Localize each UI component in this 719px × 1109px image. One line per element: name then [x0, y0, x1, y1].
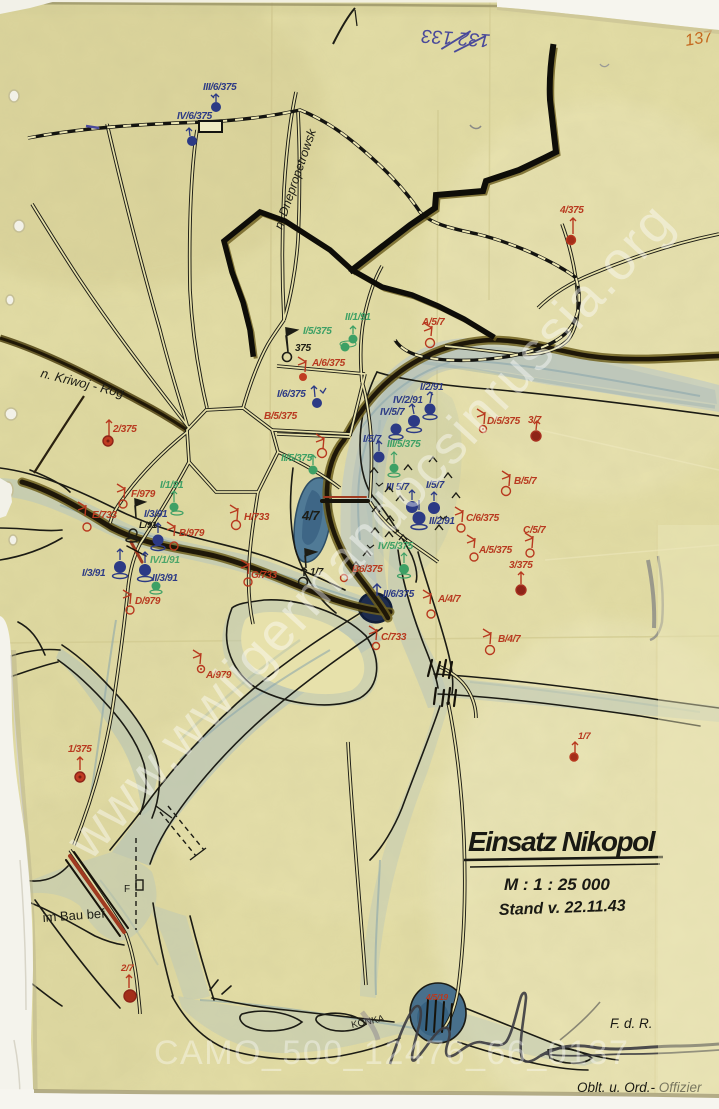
svg-text:D/979: D/979	[135, 596, 161, 607]
svg-text:B/4/7: B/4/7	[498, 634, 521, 645]
svg-text:I/5/375: I/5/375	[303, 326, 332, 337]
svg-text:I/3/91: I/3/91	[82, 568, 106, 579]
svg-text:375: 375	[295, 343, 312, 354]
svg-text:4/7: 4/7	[301, 508, 320, 523]
svg-text:I/2/91: I/2/91	[420, 382, 444, 393]
svg-text:III/6/375: III/6/375	[203, 82, 237, 93]
svg-text:A/5/375: A/5/375	[478, 545, 513, 556]
svg-text:II/5/375: II/5/375	[281, 453, 313, 464]
svg-text:3/375: 3/375	[509, 560, 533, 571]
svg-text:L/91: L/91	[139, 520, 157, 531]
svg-text:I/3/91: I/3/91	[144, 509, 168, 520]
svg-text:C/733: C/733	[381, 632, 407, 643]
svg-text:2/7: 2/7	[120, 963, 134, 974]
svg-text:I/6/375: I/6/375	[277, 389, 306, 400]
svg-text:I/1/91: I/1/91	[160, 480, 184, 491]
svg-text:C/6/375: C/6/375	[466, 513, 500, 524]
svg-text:1/375: 1/375	[68, 744, 92, 755]
svg-text:IV/1/91: IV/1/91	[150, 555, 180, 566]
svg-text:1/7: 1/7	[578, 731, 591, 742]
svg-text:CAMO_500_12476_66_0137: CAMO_500_12476_66_0137	[154, 1034, 629, 1072]
svg-text:B/5/375: B/5/375	[264, 411, 298, 422]
svg-text:3/7: 3/7	[528, 415, 542, 426]
svg-text:H/733: H/733	[244, 512, 270, 523]
svg-text:A/5/7: A/5/7	[421, 317, 445, 328]
svg-text:A/4/7: A/4/7	[437, 594, 461, 605]
svg-text:Einsatz Nikopol: Einsatz Nikopol	[468, 826, 657, 857]
svg-text:M : 1 : 25 000: M : 1 : 25 000	[504, 875, 610, 894]
svg-text:4/375: 4/375	[559, 205, 584, 216]
svg-text:A/6/375: A/6/375	[311, 358, 346, 369]
svg-text:IV/5/7: IV/5/7	[380, 407, 405, 418]
svg-text:B/5/7: B/5/7	[514, 476, 537, 487]
svg-text:II/6/375: II/6/375	[383, 589, 415, 600]
svg-text:F. d. R.: F. d. R.	[610, 1016, 653, 1031]
svg-text:II/1/91: II/1/91	[345, 312, 371, 323]
svg-text:F: F	[124, 884, 130, 895]
svg-text:IV/2/91: IV/2/91	[393, 395, 423, 406]
svg-text:2/375: 2/375	[112, 424, 137, 435]
svg-text:E/733: E/733	[92, 510, 117, 521]
svg-text:4/5/19: 4/5/19	[425, 992, 448, 1002]
svg-text:G/733: G/733	[251, 570, 277, 581]
svg-text:B/979: B/979	[179, 528, 205, 539]
